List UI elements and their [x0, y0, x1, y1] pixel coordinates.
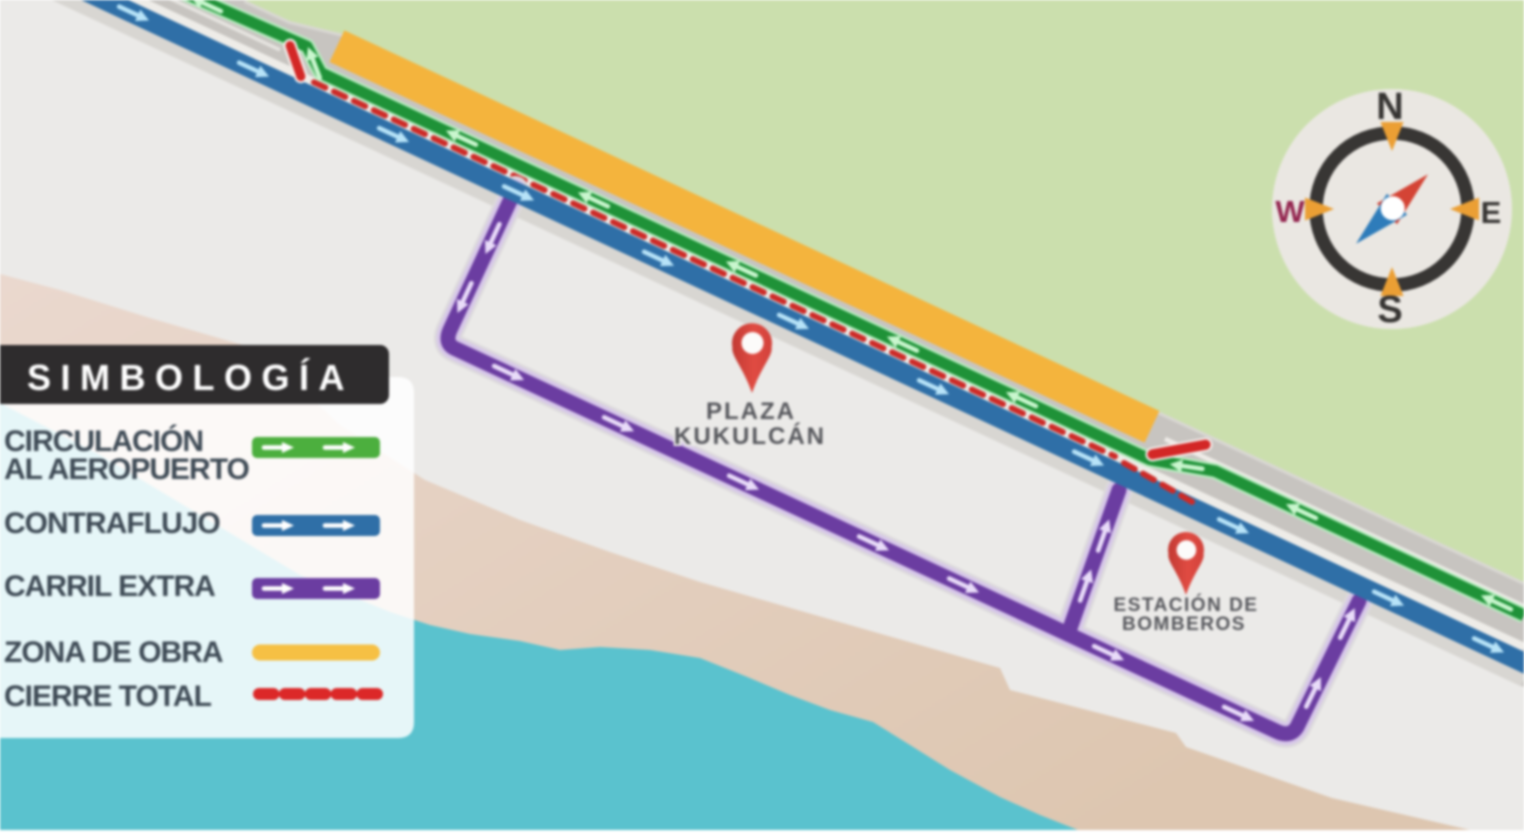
- svg-text:CARRIL EXTRA: CARRIL EXTRA: [4, 570, 215, 603]
- svg-text:ZONA DE OBRA: ZONA DE OBRA: [4, 636, 223, 669]
- svg-text:AL AEROPUERTO: AL AEROPUERTO: [4, 453, 249, 486]
- svg-text:PLAZA: PLAZA: [706, 398, 796, 425]
- svg-text:SIMBOLOGÍA: SIMBOLOGÍA: [27, 357, 354, 398]
- svg-text:S: S: [1377, 289, 1402, 331]
- svg-text:CIERRE TOTAL: CIERRE TOTAL: [4, 680, 212, 713]
- svg-text:CONTRAFLUJO: CONTRAFLUJO: [4, 507, 220, 540]
- svg-text:W: W: [1275, 194, 1305, 229]
- svg-text:N: N: [1376, 86, 1403, 128]
- svg-text:ESTACIÓN DE: ESTACIÓN DE: [1114, 594, 1259, 616]
- svg-text:KUKULCÁN: KUKULCÁN: [674, 422, 826, 450]
- svg-text:E: E: [1481, 195, 1502, 230]
- svg-text:BOMBEROS: BOMBEROS: [1122, 614, 1246, 635]
